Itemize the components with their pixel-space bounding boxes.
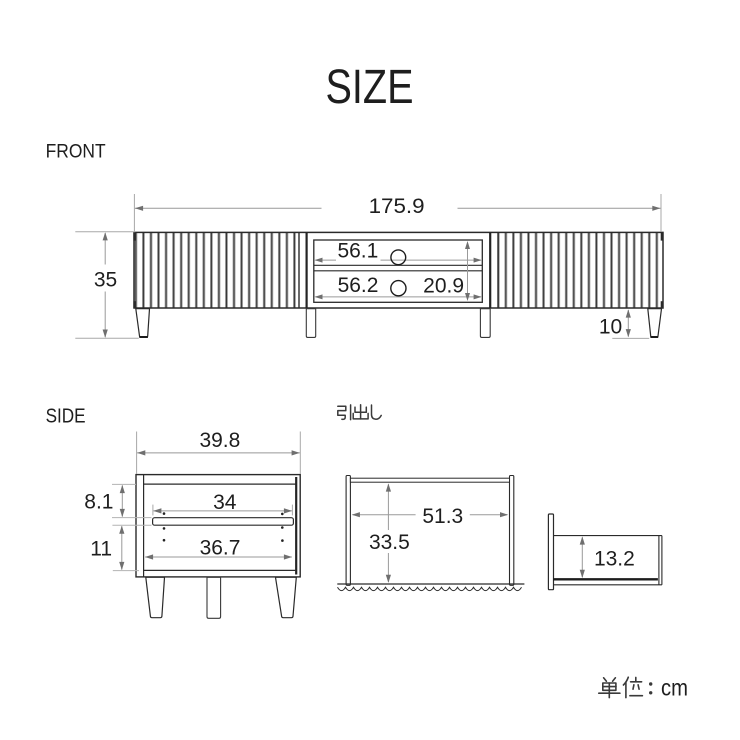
- svg-text:10: 10: [599, 315, 622, 338]
- svg-text:11: 11: [90, 538, 112, 561]
- svg-text:8.1: 8.1: [84, 490, 113, 513]
- svg-text:FRONT: FRONT: [46, 140, 106, 162]
- svg-text:39.8: 39.8: [199, 429, 240, 452]
- svg-text:20.9: 20.9: [423, 274, 464, 297]
- svg-text:56.2: 56.2: [338, 274, 379, 297]
- svg-text:56.1: 56.1: [337, 240, 378, 263]
- svg-text:35: 35: [94, 268, 117, 291]
- svg-text:51.3: 51.3: [422, 505, 463, 528]
- svg-text:36.7: 36.7: [200, 536, 241, 559]
- svg-text:34: 34: [213, 491, 237, 514]
- svg-text:cm: cm: [661, 675, 688, 701]
- svg-text:SIZE: SIZE: [326, 61, 414, 114]
- svg-text:33.5: 33.5: [369, 531, 410, 554]
- svg-text:175.9: 175.9: [369, 195, 425, 218]
- svg-text:13.2: 13.2: [594, 548, 635, 571]
- svg-text:SIDE: SIDE: [46, 406, 86, 428]
